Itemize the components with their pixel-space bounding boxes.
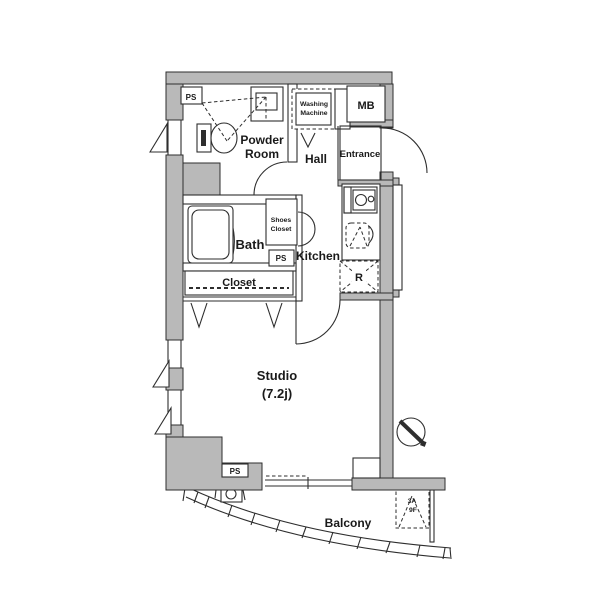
- label-mb: MB: [357, 100, 374, 112]
- utility-symbol-icon: [397, 418, 427, 447]
- label-ps-bottom: PS: [230, 467, 241, 476]
- window-marker-icon: [150, 124, 167, 152]
- label-entrance: Entrance: [340, 149, 381, 160]
- floor-plan-page: PS Washing Machine MB Powder Room Hall E…: [0, 0, 600, 601]
- label-closet: Closet: [222, 277, 256, 289]
- label-hatch-1: 3A: [408, 498, 417, 505]
- kitchen-counter: [342, 184, 380, 260]
- label-powder-1: Powder: [240, 133, 284, 147]
- wall-return-column: [353, 458, 380, 478]
- window-marker-icon: [155, 408, 171, 434]
- label-shoes-1: Shoes: [271, 217, 292, 224]
- exterior-channel: [393, 185, 402, 290]
- powder-room-door-arc: [254, 162, 287, 195]
- washing-machine-icon: [292, 89, 350, 129]
- washbasin-icon: [251, 87, 283, 121]
- window-marker-icon: [153, 361, 169, 387]
- wall-bottom-right: [352, 478, 445, 490]
- label-fridge: R: [355, 272, 363, 284]
- label-washing-1: Washing: [300, 101, 328, 108]
- label-ps-mid: PS: [276, 254, 287, 263]
- label-studio-1: Studio: [257, 368, 297, 383]
- wall-kitchen-studio: [340, 293, 393, 300]
- folding-door-icon: [191, 303, 207, 327]
- wall-left-1: [166, 84, 183, 120]
- wall-stub: [393, 290, 399, 297]
- studio-door-arc: [296, 300, 340, 344]
- entrance-door-arc: [382, 128, 427, 173]
- label-ps-top: PS: [186, 93, 197, 102]
- balcony-support-line: [215, 490, 216, 498]
- floor-plan-drawing: PS Washing Machine MB Powder Room Hall E…: [0, 0, 600, 601]
- label-hall: Hall: [305, 152, 327, 166]
- wall-left-2: [166, 155, 183, 340]
- balcony-railing-endcap-right: [450, 548, 451, 559]
- label-hatch-2: 9F: [409, 507, 417, 514]
- folding-door-icon: [266, 303, 282, 327]
- balcony-support-line: [243, 490, 245, 500]
- hall-vent-icon: [301, 133, 315, 147]
- bathtub-icon: [188, 206, 233, 263]
- wall-stub: [393, 178, 399, 185]
- balcony-divider: [430, 490, 434, 542]
- balcony-sliding-window: [265, 476, 352, 489]
- label-powder-2: Room: [245, 147, 279, 161]
- window-powder-room: [150, 120, 181, 155]
- toilet-icon: [197, 123, 237, 153]
- wall-top: [166, 72, 392, 84]
- label-shoes-2: Closet: [271, 226, 293, 233]
- label-balcony: Balcony: [325, 516, 372, 530]
- wall-right-main: [380, 172, 393, 478]
- label-bath: Bath: [236, 237, 265, 252]
- label-studio-2: (7.2j): [262, 386, 292, 401]
- label-kitchen: Kitchen: [296, 249, 340, 263]
- label-washing-2: Machine: [300, 110, 327, 117]
